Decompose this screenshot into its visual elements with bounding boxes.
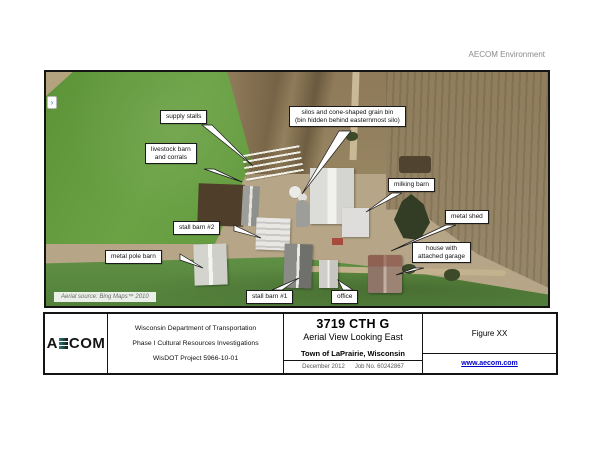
callout-metal-pole-barn: metal pole barn — [105, 250, 162, 264]
callout-silos-grain-bin: silos and cone-shaped grain bin (bin hid… — [289, 106, 406, 127]
logo-letters-com: COM — [69, 335, 106, 352]
callout-house: house with attached garage — [412, 242, 471, 263]
callout-milking-barn: milking barn — [388, 178, 435, 192]
figure-job-no: Job No. 60242867 — [355, 364, 404, 370]
figure-title-cell: 3719 CTH G Aerial View Looking East Town… — [283, 314, 422, 373]
leader-silos — [302, 131, 351, 194]
chevron-right-icon[interactable]: › — [47, 96, 57, 109]
figure-location: Town of LaPrairie, Wisconsin — [284, 349, 422, 358]
leader-milking-barn — [366, 193, 402, 212]
aecom-website-link[interactable]: www.aecom.com — [461, 360, 518, 367]
agency-line: Phase I Cultural Resources Investigation… — [110, 340, 281, 347]
logo-stylized-e-icon — [59, 338, 68, 349]
callout-text: stall barn #1 — [252, 293, 287, 301]
leader-office — [338, 280, 353, 290]
aerial-photo: supply stalls livestock barn and corrals… — [44, 70, 550, 308]
figure-number: Figure XX — [423, 314, 556, 353]
callout-text: livestock barn — [151, 146, 191, 154]
callout-metal-shed: metal shed — [445, 210, 489, 224]
callout-text: metal shed — [451, 213, 483, 221]
leader-stall-barn-2 — [234, 225, 261, 238]
website-cell: www.aecom.com — [423, 353, 556, 373]
callout-text: office — [337, 293, 352, 301]
callout-stall-barn-1: stall barn #1 — [246, 290, 293, 304]
figure-number-cell: Figure XX www.aecom.com — [422, 314, 556, 373]
agency-cell: Wisconsin Department of Transportation P… — [107, 314, 283, 373]
aecom-logo-text: A COM — [47, 335, 106, 352]
callout-text: milking barn — [394, 181, 429, 189]
callout-text: house with — [418, 245, 465, 253]
callout-text: metal pole barn — [111, 253, 156, 261]
aecom-logo: A COM — [45, 314, 107, 373]
callout-text: supply stalls — [166, 113, 201, 121]
brand-environment-text: AECOM Environment — [469, 50, 545, 59]
callout-stall-barn-2: stall barn #2 — [173, 221, 220, 235]
aerial-source-note: Aerial source: Bing Maps™ 2010 — [54, 292, 156, 302]
callout-text: silos and cone-shaped grain bin — [295, 109, 400, 117]
leader-livestock-barn — [204, 169, 242, 182]
callout-livestock-barn: livestock barn and corrals — [145, 143, 197, 164]
callout-text: stall barn #2 — [179, 224, 214, 232]
callout-text: attached garage — [418, 253, 465, 261]
figure-subtitle: Aerial View Looking East — [284, 332, 422, 342]
leader-house — [396, 268, 424, 275]
title-block: A COM Wisconsin Department of Transporta… — [43, 312, 558, 375]
figure-title: 3719 CTH G — [284, 317, 422, 331]
callout-office: office — [331, 290, 358, 304]
logo-letter-a: A — [47, 335, 58, 352]
callout-text: (bin hidden behind easternmost silo) — [295, 117, 400, 125]
figure-date: December 2012 — [302, 364, 345, 370]
leader-supply-stalls — [202, 125, 253, 166]
date-job-row: December 2012 Job No. 60242867 — [284, 360, 422, 373]
callout-text: and corrals — [151, 154, 191, 162]
agency-line: WisDOT Project 5966-10-01 — [110, 355, 281, 362]
figure-page: AECOM Environment — [0, 0, 600, 450]
leader-metal-pole-barn — [180, 254, 203, 268]
agency-line: Wisconsin Department of Transportation — [110, 325, 281, 332]
callout-supply-stalls: supply stalls — [160, 110, 207, 124]
leader-stall-barn-1 — [272, 278, 299, 290]
